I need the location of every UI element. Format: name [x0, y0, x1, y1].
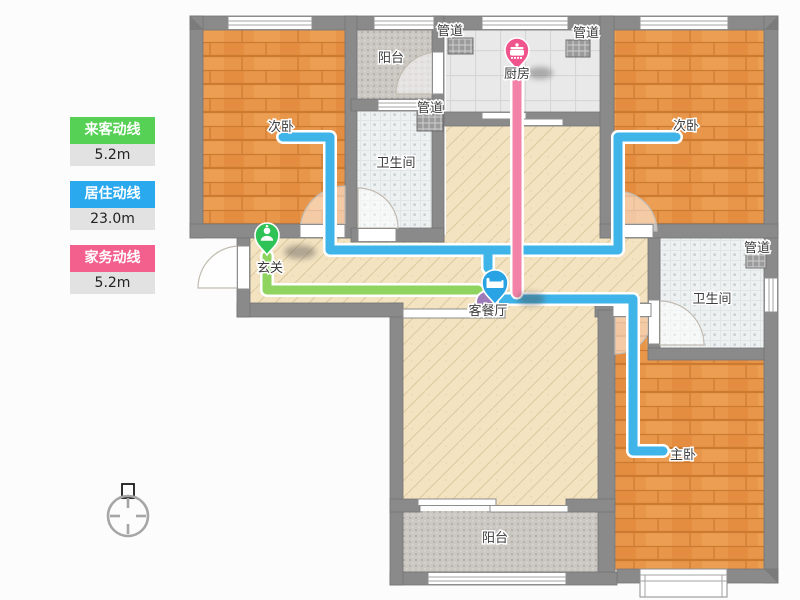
window-bedroom-tr: [640, 17, 728, 30]
window-bath-left: [378, 100, 420, 111]
window-bath-right: [765, 278, 778, 312]
door-entry-swing[interactable]: [198, 246, 240, 288]
window-balcony-bottom: [428, 573, 566, 585]
label-bath-left: 卫生间: [376, 156, 415, 171]
compass-ticks: [110, 498, 146, 534]
label-balcony-top: 阳台: [378, 51, 404, 66]
compass: [108, 484, 148, 536]
label-duct-2: 管道: [573, 26, 599, 41]
sliding-door-kitchen-panel[interactable]: [519, 119, 563, 126]
floor-plan-svg: 次卧 阳台 管道 管道 管道 卫生间 厨房 次卧 玄关 客餐厅 管道 卫生间 主…: [0, 0, 800, 600]
label-duct-4: 管道: [744, 241, 770, 256]
label-living: 客餐厅: [468, 303, 507, 319]
label-bedroom-tr: 次卧: [673, 118, 699, 134]
window-kitchen: [482, 17, 568, 30]
duct-niche-2: [566, 40, 590, 57]
label-master: 主卧: [670, 448, 696, 463]
label-duct-3: 管道: [417, 101, 443, 116]
label-kitchen: 厨房: [504, 66, 530, 82]
sliding-door-balcony-panel[interactable]: [490, 506, 568, 513]
floor-plan-app: 来客动线 5.2m 居住动线 23.0m 家务动线 5.2m: [0, 0, 800, 600]
duct-niche-1: [448, 38, 473, 54]
label-balcony-bottom: 阳台: [482, 531, 508, 546]
label-entry: 玄关: [257, 261, 283, 276]
window-bedroom-tl: [228, 17, 312, 30]
bay-window-master: [640, 569, 727, 597]
label-duct-1: 管道: [437, 24, 463, 39]
label-bath-right: 卫生间: [692, 292, 731, 307]
entry-door[interactable]: [238, 246, 250, 289]
sliding-door-balcony[interactable]: [418, 499, 496, 506]
window-balcony-top: [374, 17, 434, 30]
label-bedroom-tl: 次卧: [268, 119, 294, 135]
